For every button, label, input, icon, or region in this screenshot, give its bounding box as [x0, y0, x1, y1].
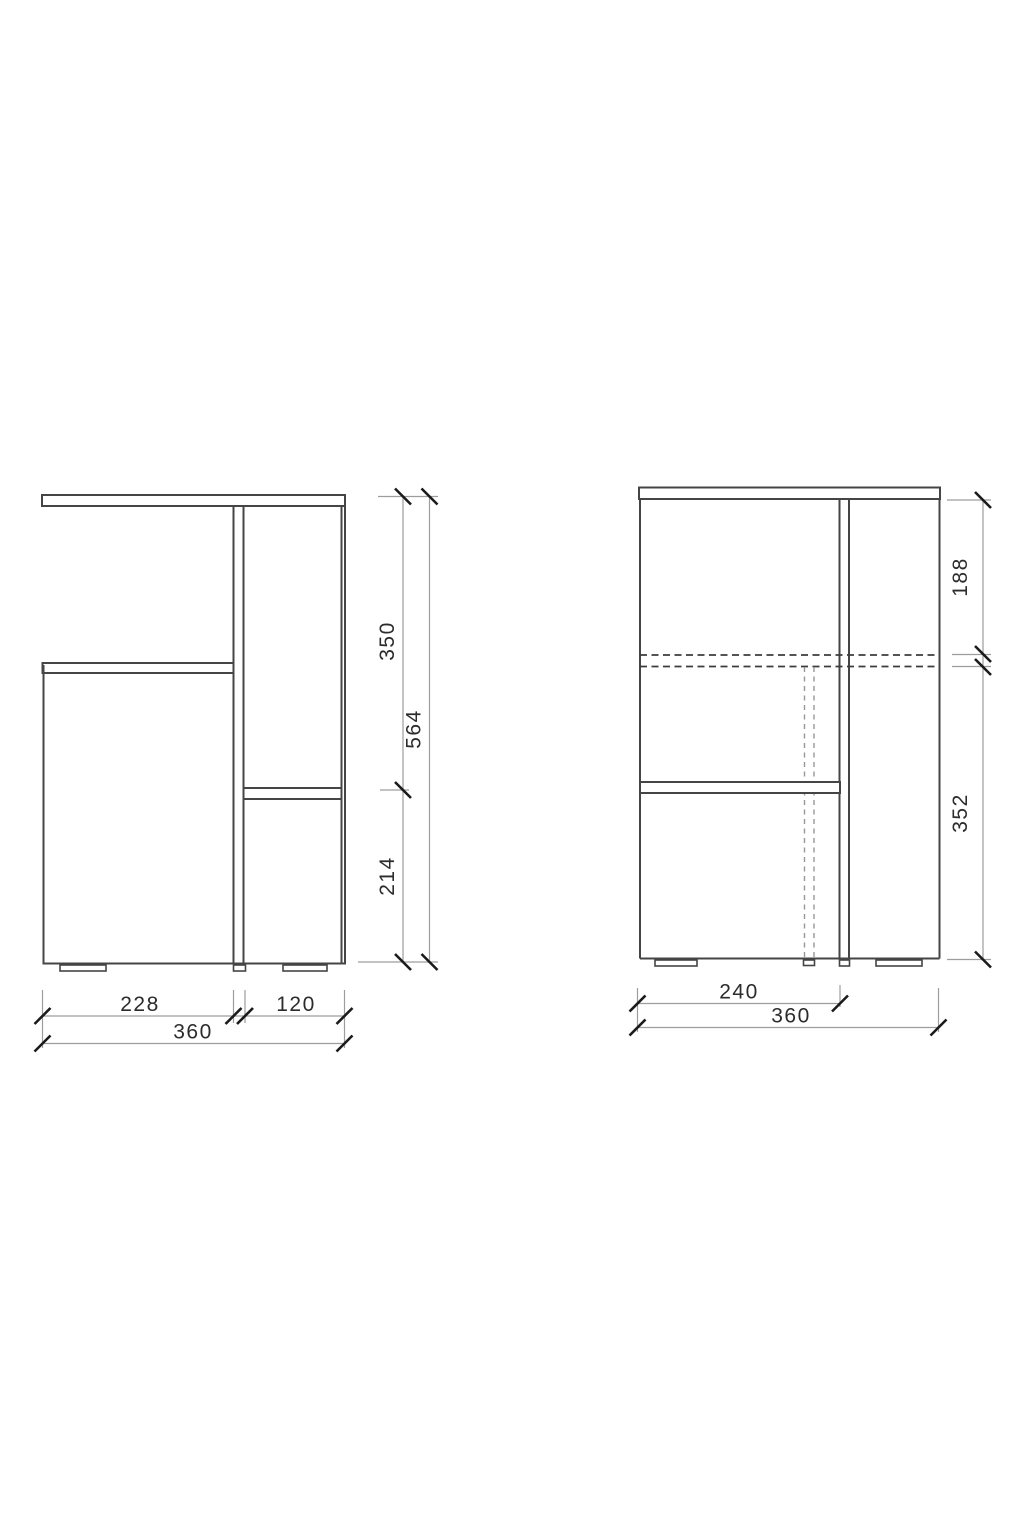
side-vertical-dimensions: 188 352 [947, 492, 991, 968]
side-dim-depth-total-label: 360 [771, 1005, 811, 1028]
front-dim-height-upper-label: 350 [376, 621, 399, 661]
drawing-svg: 350 564 214 228 120 360 [0, 0, 1024, 1536]
side-dim-height-lower-label: 352 [949, 793, 972, 833]
front-top-panel [42, 495, 345, 506]
front-foot-right [283, 965, 327, 971]
side-foot-left [655, 960, 697, 966]
side-top-panel [639, 488, 940, 500]
side-divider-panel-edge [840, 499, 850, 959]
side-dim-height-upper-label: 188 [949, 557, 972, 597]
side-foot-divider [840, 960, 850, 966]
front-view: 350 564 214 228 120 360 [35, 489, 439, 1052]
front-dim-width-right-label: 120 [276, 993, 316, 1016]
front-foot-left [60, 965, 106, 971]
technical-drawing-canvas: 350 564 214 228 120 360 [0, 0, 1024, 1536]
front-dim-height-lower-label: 214 [376, 856, 399, 896]
side-dim-depth-shelf-label: 240 [719, 981, 759, 1004]
front-right-side-panel [342, 506, 346, 964]
side-shelf [640, 782, 840, 793]
front-right-shelf [244, 788, 342, 799]
front-center-divider-panel [234, 506, 244, 964]
front-dim-height-total-label: 564 [403, 709, 426, 749]
front-horizontal-dimensions: 228 120 360 [35, 990, 353, 1052]
side-foot-right [876, 960, 922, 966]
side-foot-hidden [804, 960, 815, 966]
front-foot-center [234, 965, 246, 971]
front-dim-width-total-label: 360 [173, 1021, 213, 1044]
side-horizontal-dimensions: 240 360 [630, 981, 947, 1036]
side-view: 188 352 240 360 [630, 488, 992, 1036]
front-dim-width-left-label: 228 [120, 993, 160, 1016]
front-vertical-dimensions: 350 564 214 [358, 489, 438, 971]
front-left-shelf [43, 663, 234, 673]
